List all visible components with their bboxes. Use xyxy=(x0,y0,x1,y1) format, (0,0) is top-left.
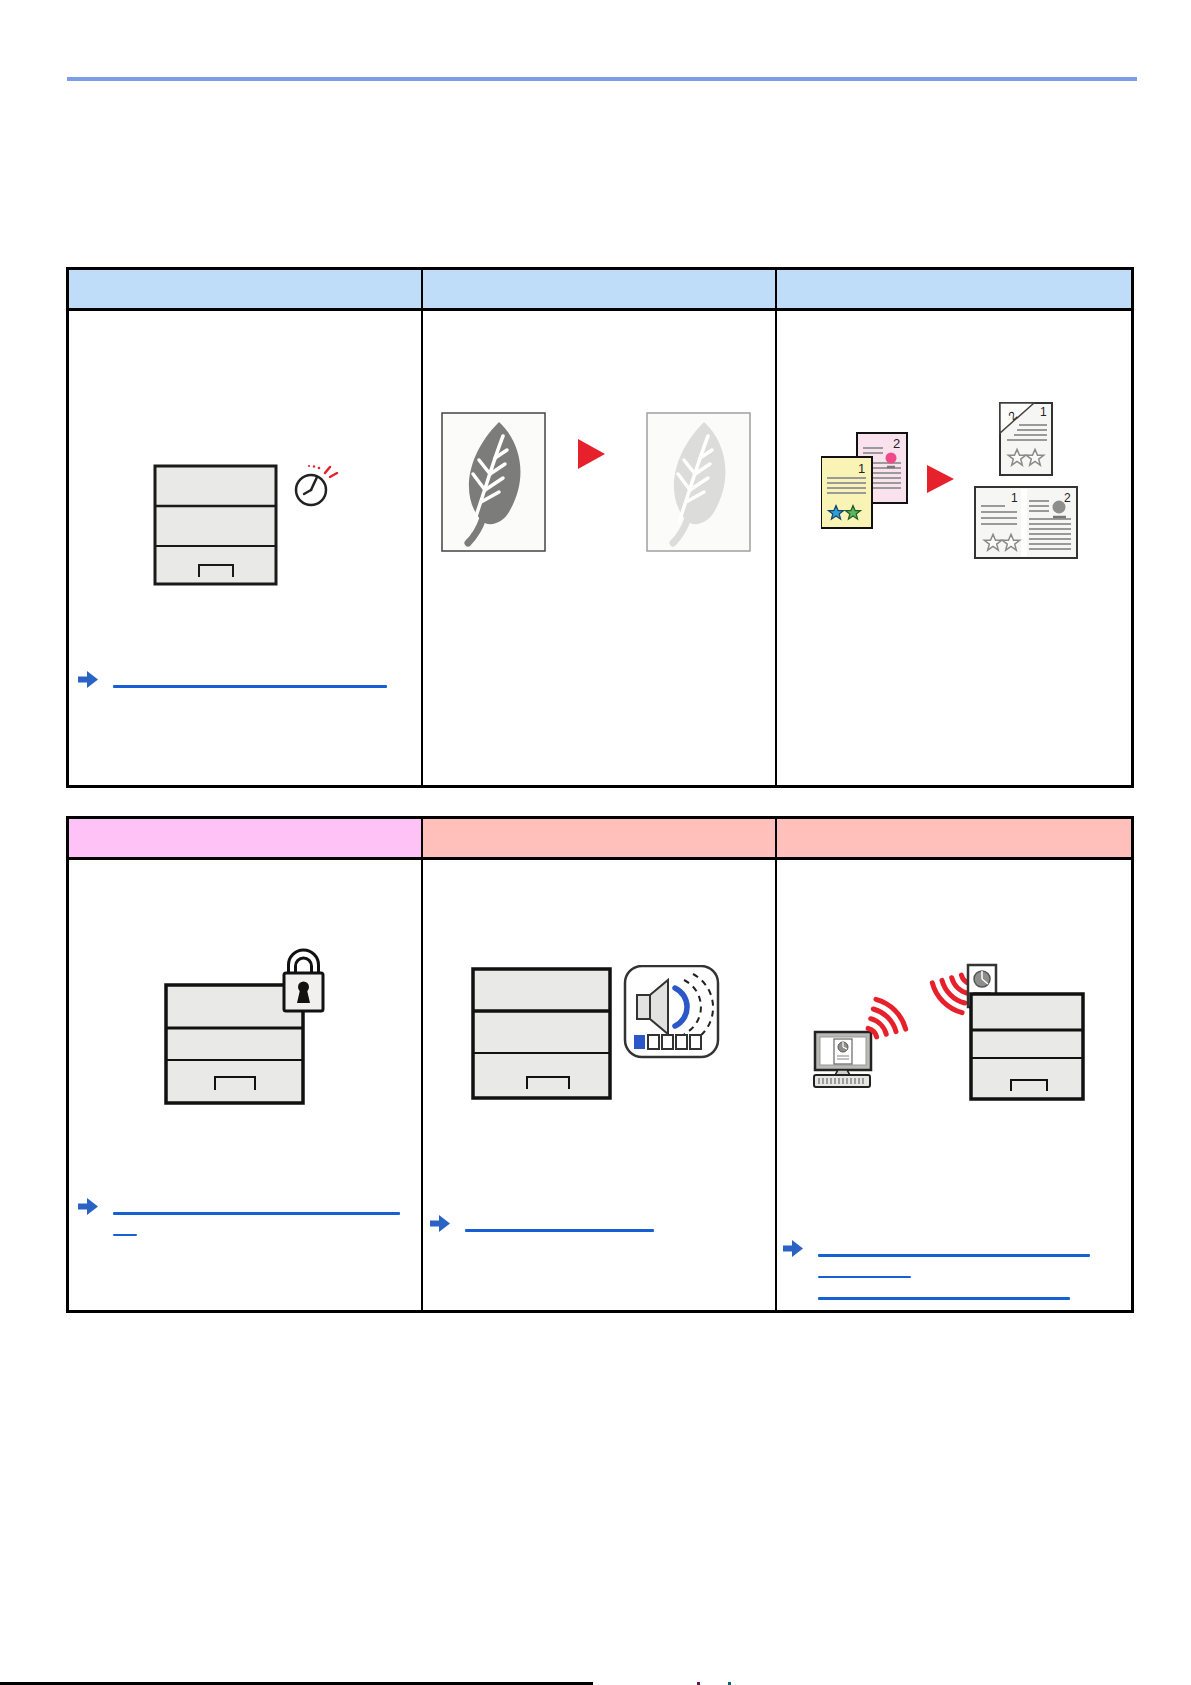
link-underline xyxy=(465,1229,654,1232)
feature-table-2 xyxy=(66,816,1134,1313)
feature-table-1: 2 1 xyxy=(66,267,1134,788)
table2-header-cell-3 xyxy=(777,819,1131,857)
duplex-combine-pages-icon: 2 1 xyxy=(821,401,1131,561)
svg-text:1: 1 xyxy=(1011,491,1018,505)
feature-cell-security xyxy=(69,860,423,1310)
link-arrow-icon xyxy=(78,1198,98,1215)
link-underline xyxy=(113,1234,137,1237)
link-underline xyxy=(818,1297,1070,1300)
link-arrow-icon xyxy=(78,671,98,688)
feature-reference-link[interactable] xyxy=(78,671,387,688)
feature-cell-wireless-print xyxy=(777,860,1131,1310)
svg-text:2: 2 xyxy=(893,436,900,451)
feature-reference-link[interactable] xyxy=(78,1198,400,1236)
svg-text:1: 1 xyxy=(1040,405,1047,419)
section-divider-rule xyxy=(67,77,1137,81)
table1-header-cell-2 xyxy=(423,270,777,308)
toner-save-leaf-icon xyxy=(441,412,751,552)
printer-sleep-timer-icon xyxy=(153,464,353,598)
link-arrow-icon xyxy=(430,1215,450,1232)
feature-table-2-header xyxy=(69,819,1131,860)
link-underline xyxy=(818,1276,911,1279)
link-underline xyxy=(113,1212,400,1215)
table1-header-cell-3 xyxy=(777,270,1131,308)
link-underline xyxy=(113,685,387,688)
svg-text:2: 2 xyxy=(1064,491,1071,505)
table2-header-cell-1 xyxy=(69,819,423,857)
link-underline xyxy=(818,1254,1090,1257)
manual-page: 2 1 xyxy=(0,0,1191,1685)
table2-header-cell-2 xyxy=(423,819,777,857)
quiet-mode-volume-icon xyxy=(471,965,721,1101)
wifi-signal-icon xyxy=(932,975,970,1013)
security-lock-printer-icon xyxy=(164,940,329,1106)
feature-reference-link[interactable] xyxy=(783,1240,1090,1300)
wifi-signal-icon xyxy=(868,999,906,1037)
wireless-print-icon xyxy=(813,958,1103,1108)
feature-reference-link[interactable] xyxy=(430,1215,654,1232)
svg-text:1: 1 xyxy=(858,461,865,476)
table1-header-cell-1 xyxy=(69,270,423,308)
feature-cell-duplex-combine: 2 1 xyxy=(777,311,1131,785)
volume-level-bar xyxy=(634,1035,701,1049)
feature-cell-quiet-mode xyxy=(423,860,777,1310)
feature-cell-toner-save xyxy=(423,311,777,785)
link-arrow-icon xyxy=(783,1240,803,1257)
feature-cell-sleep-timer xyxy=(69,311,423,785)
feature-table-1-header xyxy=(69,270,1131,311)
